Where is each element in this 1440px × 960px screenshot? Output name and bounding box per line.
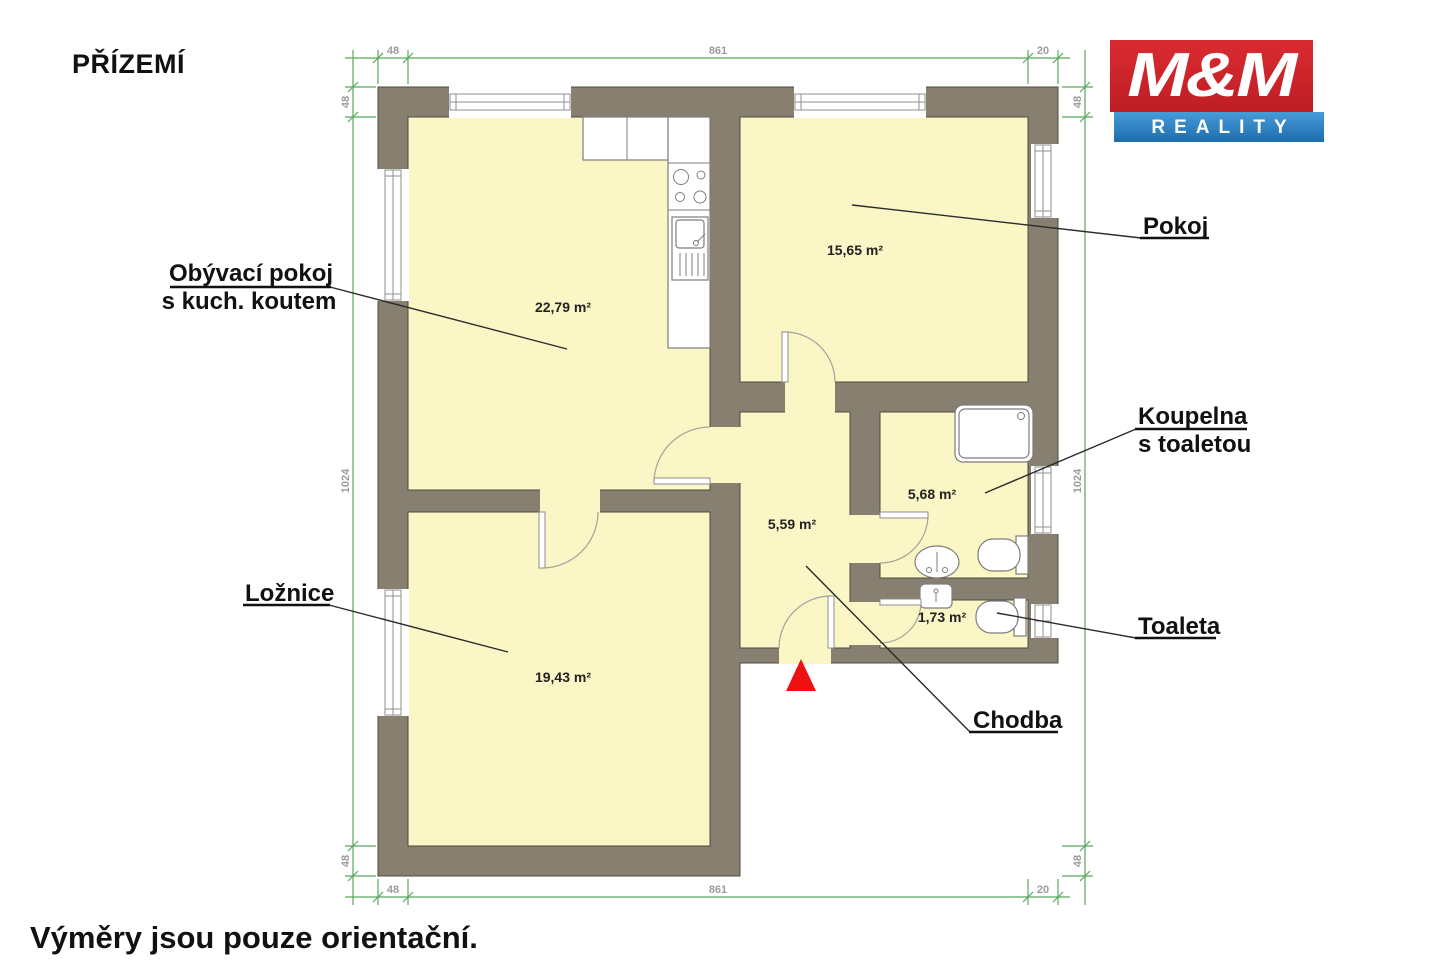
floor-plan-page: PŘÍZEMÍ Obývací pokoj s kuch. koutem Pok… xyxy=(0,0,1440,960)
dim-top-861: 861 xyxy=(709,45,727,57)
window-pokoj-top xyxy=(794,86,926,118)
label-koupelna-line2: s toaletou xyxy=(1138,431,1251,458)
label-koupelna-line1: Koupelna xyxy=(1138,403,1248,430)
label-living-line2: s kuch. koutem xyxy=(162,288,337,315)
area-living: 22,79 m² xyxy=(535,299,591,315)
page-title: PŘÍZEMÍ xyxy=(72,48,186,79)
window-pokoj-right xyxy=(1031,144,1063,218)
dim-top-48: 48 xyxy=(387,45,399,57)
dim-bottom-48: 48 xyxy=(387,884,399,896)
window-living-top xyxy=(449,86,571,118)
kitchen-sink-icon xyxy=(672,217,708,280)
label-chodba: Chodba xyxy=(973,707,1063,734)
floor-plan-drawing: PŘÍZEMÍ Obývací pokoj s kuch. koutem Pok… xyxy=(0,0,1440,960)
logo-reality-block: REALITY xyxy=(1114,112,1324,142)
label-loznice: Ložnice xyxy=(245,580,334,607)
area-pokoj: 15,65 m² xyxy=(827,242,883,258)
window-koupelna-right xyxy=(1031,466,1063,534)
window-toaleta-right xyxy=(1031,604,1063,638)
logo-mm-block: M&M xyxy=(1110,40,1313,112)
label-living-line1: Obývací pokoj xyxy=(169,260,333,287)
dim-bottom-20: 20 xyxy=(1037,884,1049,896)
dim-top-20: 20 xyxy=(1037,45,1049,57)
label-pokoj: Pokoj xyxy=(1143,213,1208,240)
mm-reality-logo: M&M REALITY xyxy=(1110,40,1324,142)
dim-left-1024: 1024 xyxy=(340,468,352,493)
dim-right-48-top: 48 xyxy=(1072,96,1084,108)
area-koupelna: 5,68 m² xyxy=(908,486,957,502)
koupelna-sink-icon xyxy=(915,546,959,578)
area-toaleta: 1,73 m² xyxy=(918,609,967,625)
area-chodba: 5,59 m² xyxy=(768,516,817,532)
bathtub-icon xyxy=(955,405,1033,462)
dim-left-48-top: 48 xyxy=(340,96,352,108)
window-loznice-left xyxy=(377,589,409,716)
area-loznice: 19,43 m² xyxy=(535,669,591,685)
logo-reality-text: REALITY xyxy=(1151,118,1295,137)
toaleta-sink-icon xyxy=(920,584,952,608)
label-toaleta: Toaleta xyxy=(1138,613,1221,640)
dim-left-48-bottom: 48 xyxy=(340,855,352,867)
koupelna-toilet-icon xyxy=(978,536,1028,574)
disclaimer-text: Výměry jsou pouze orientační. xyxy=(30,920,478,955)
dim-right-48-bottom: 48 xyxy=(1072,855,1084,867)
dim-bottom-861: 861 xyxy=(709,884,727,896)
dim-right-1024: 1024 xyxy=(1072,468,1084,493)
logo-mm-text: M&M xyxy=(1128,45,1296,107)
window-living-left xyxy=(377,169,409,301)
